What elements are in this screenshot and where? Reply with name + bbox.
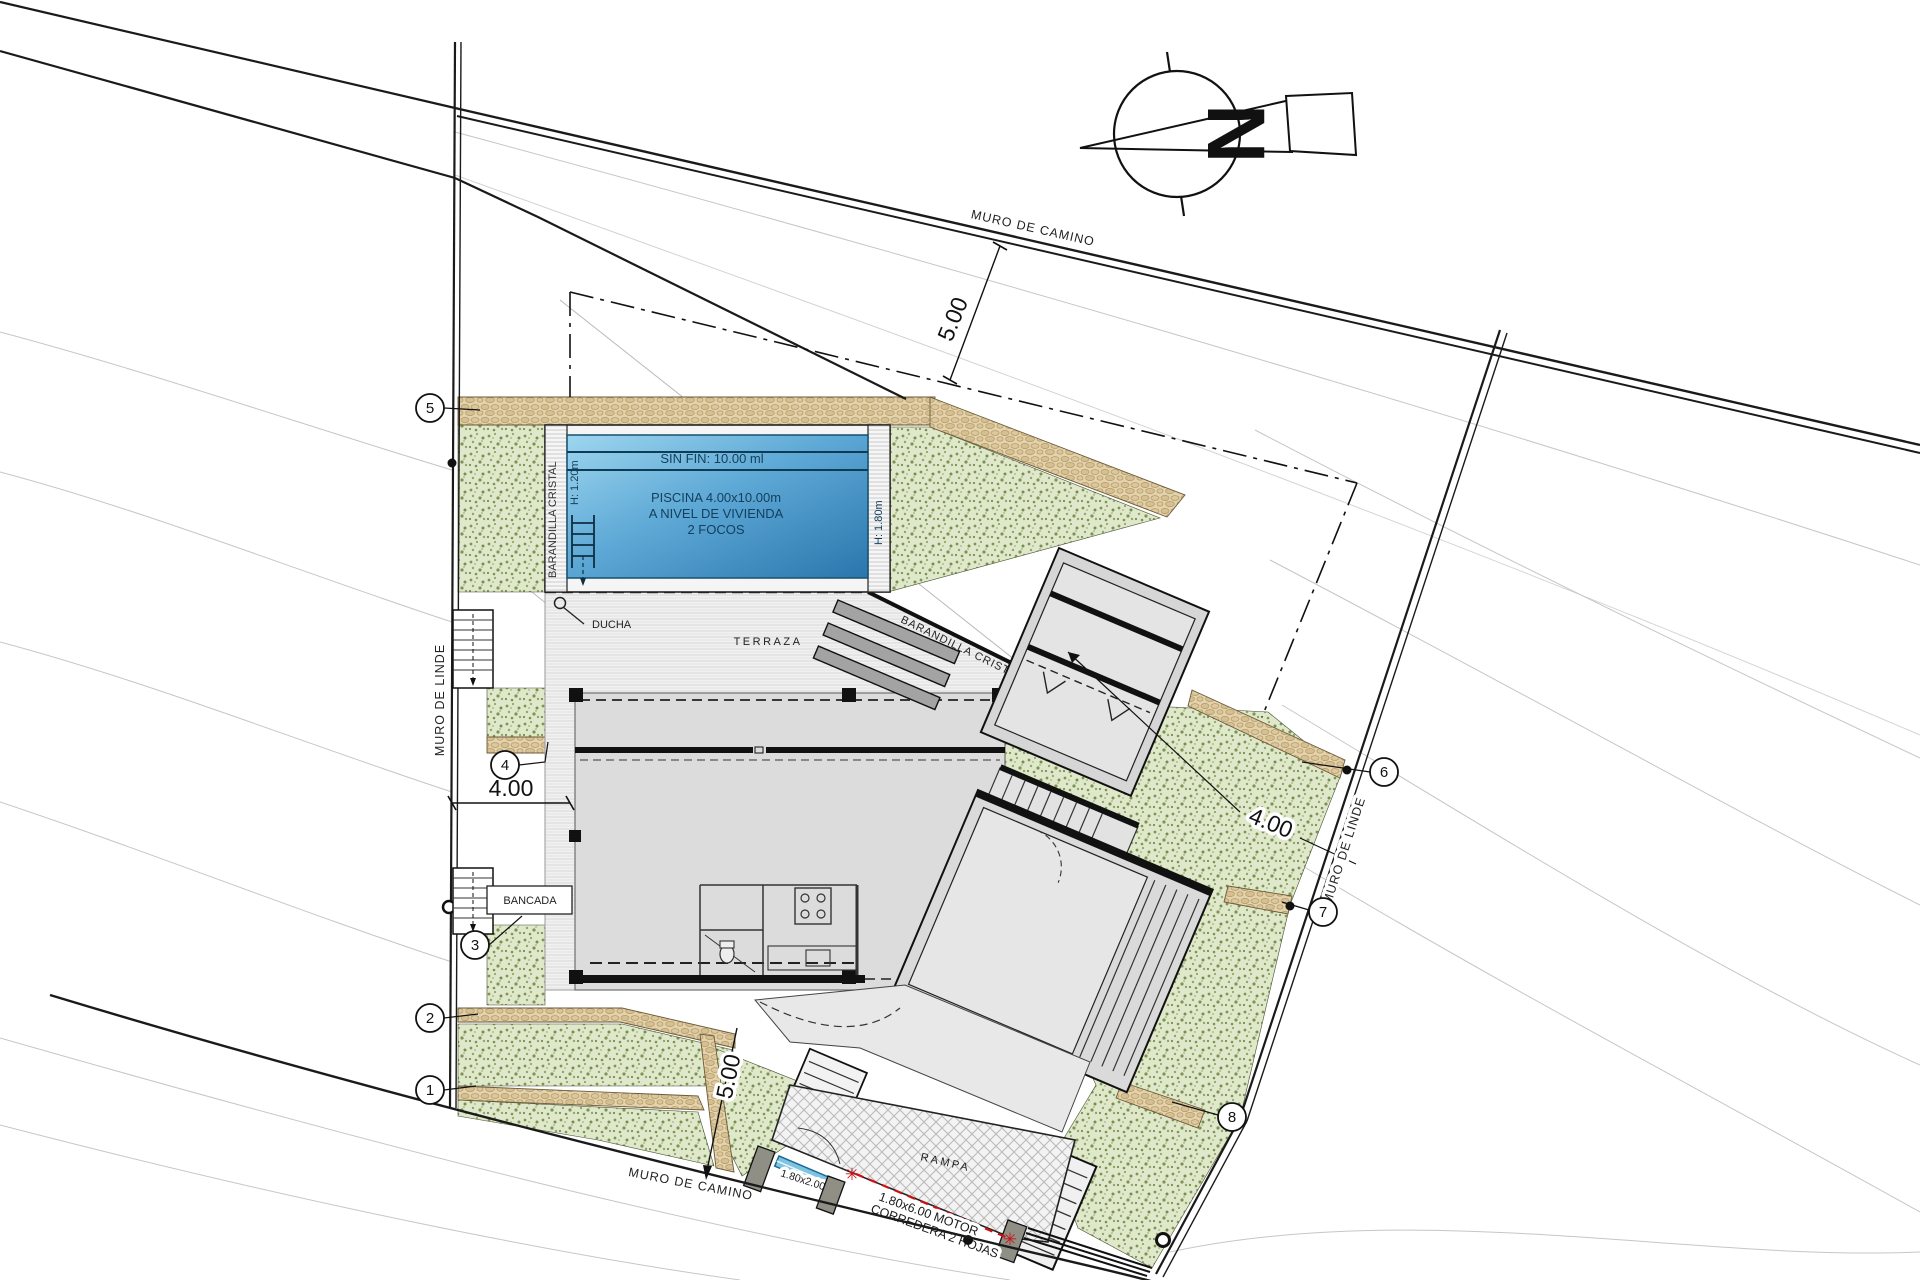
stone-wall-left-mid — [487, 737, 545, 753]
svg-text:8: 8 — [1228, 1109, 1236, 1126]
pool-height-right-label: H: 1.80m — [873, 500, 885, 545]
pool-height-left-label: H: 1.20m — [569, 460, 581, 505]
top-road — [0, 2, 1920, 453]
svg-text:6: 6 — [1380, 764, 1388, 781]
bench: BANCADA — [487, 886, 572, 914]
dimension-left-value: 4.00 — [489, 775, 534, 801]
pool-rail-label: BARANDILLA CRISTAL — [547, 461, 559, 578]
terrace-label: TERRAZA — [734, 636, 803, 648]
pool: SIN FIN: 10.00 ml PISCINA 4.00x10.00m A … — [545, 425, 890, 592]
vegetation-left-low — [487, 925, 545, 1005]
pool-level-label: A NIVEL DE VIVIENDA — [649, 506, 784, 521]
boundary-post-dot — [448, 459, 457, 468]
bench-label: BANCADA — [503, 895, 557, 907]
motor-gate-end-icon: ✳ — [845, 1165, 859, 1184]
pool-lights-label: 2 FOCOS — [687, 522, 744, 537]
boundary-post-ring — [1157, 1234, 1170, 1247]
shower-label: DUCHA — [592, 619, 632, 631]
left-stairs-upper — [453, 610, 493, 688]
site-plan-page: SIN FIN: 10.00 ml PISCINA 4.00x10.00m A … — [0, 0, 1920, 1280]
pool-name-label: PISCINA 4.00x10.00m — [651, 490, 781, 505]
left-boundary — [443, 42, 461, 1108]
svg-text:2: 2 — [426, 1010, 434, 1027]
top-road-label: MURO DE CAMINO — [970, 207, 1096, 249]
bathroom-fixtures — [720, 941, 734, 963]
svg-text:4: 4 — [501, 757, 509, 774]
svg-text:5: 5 — [426, 400, 434, 417]
bottom-road-label: MURO DE CAMINO — [627, 1165, 754, 1203]
vegetation-left-mid — [487, 688, 545, 737]
compass-north-letter: N — [1190, 104, 1281, 163]
dimension-top-setback: 5.00 — [932, 242, 1007, 384]
north-compass: N — [1080, 52, 1356, 216]
vegetation-band-2 — [458, 1100, 714, 1166]
svg-text:1: 1 — [426, 1082, 434, 1099]
pool-edge-label: SIN FIN: 10.00 ml — [660, 451, 763, 466]
svg-text:7: 7 — [1319, 904, 1327, 921]
stone-wall-pool-top — [458, 397, 935, 425]
svg-text:3: 3 — [471, 937, 479, 954]
dimension-top-setback-value: 5.00 — [932, 293, 973, 344]
site-plan-drawing: SIN FIN: 10.00 ml PISCINA 4.00x10.00m A … — [0, 0, 1920, 1280]
boundary-post-dot — [1343, 766, 1352, 775]
vegetation-pool-left — [458, 425, 545, 592]
left-boundary-label: MURO DE LINDE — [433, 644, 447, 756]
